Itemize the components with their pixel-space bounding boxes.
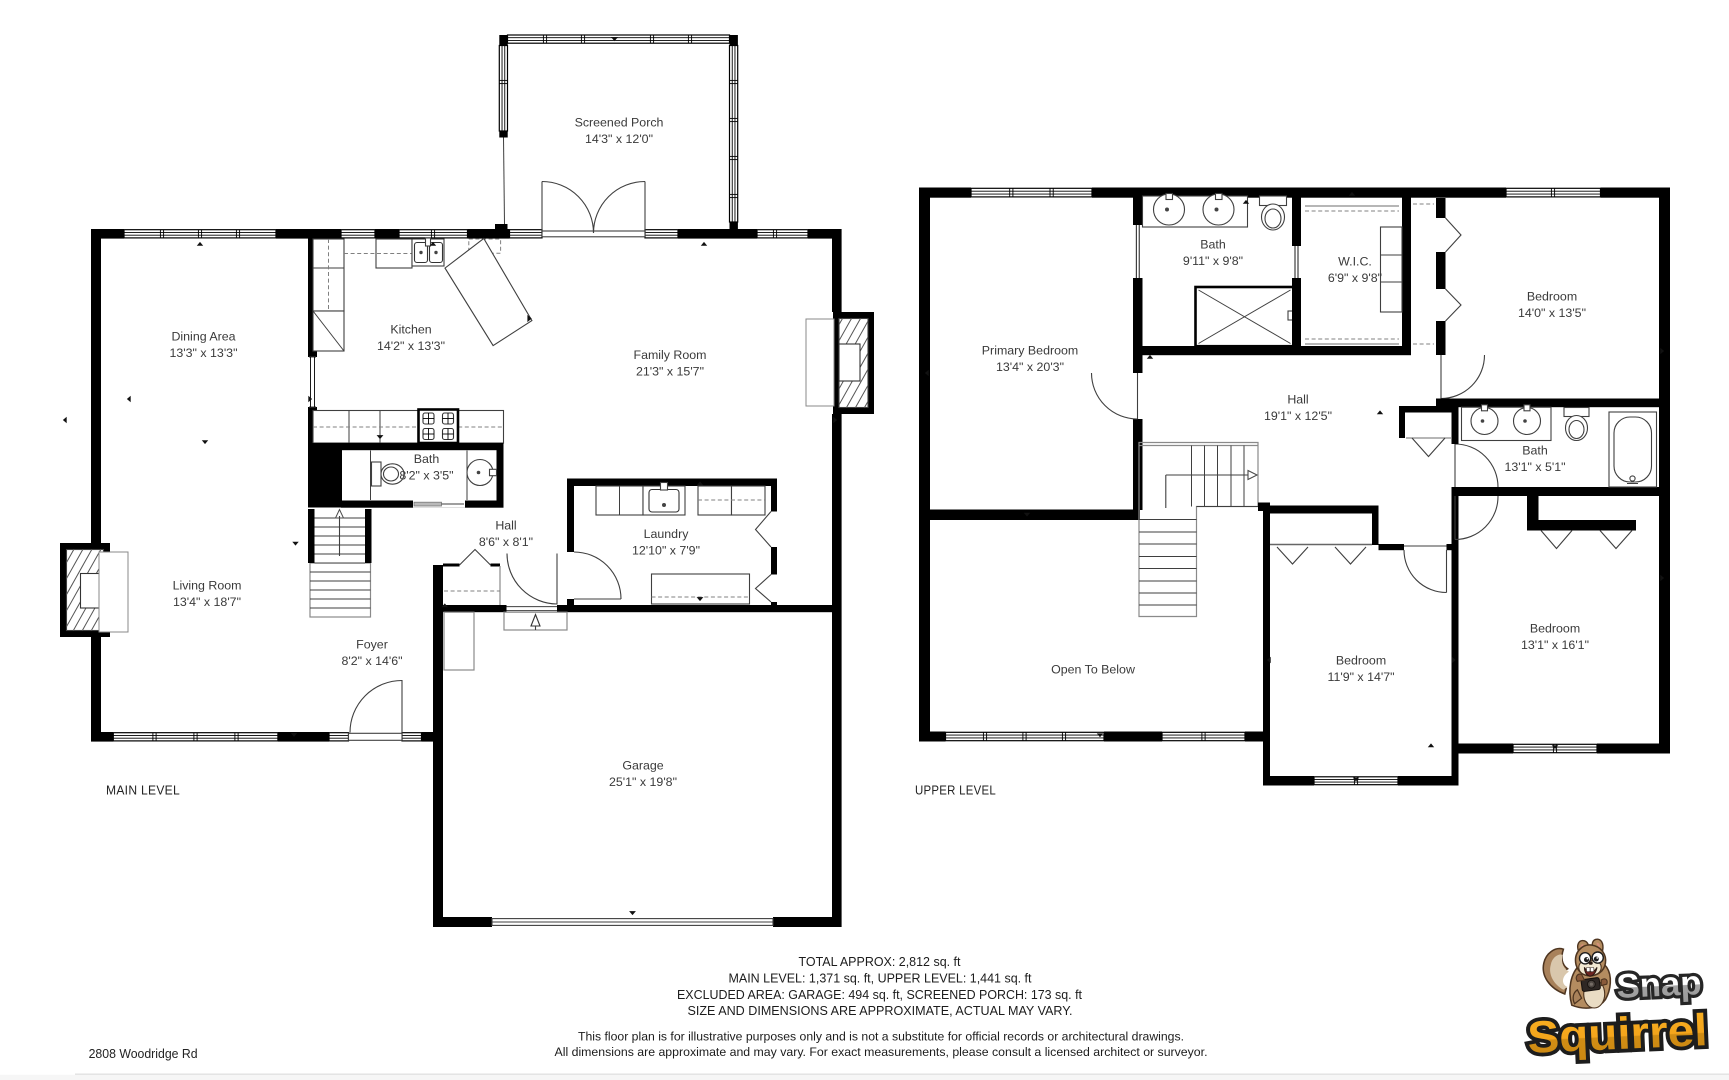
svg-text:19'1" x 12'5": 19'1" x 12'5" xyxy=(1264,409,1332,423)
svg-text:Kitchen: Kitchen xyxy=(390,323,431,337)
svg-text:EXCLUDED AREA: GARAGE: 494 sq.: EXCLUDED AREA: GARAGE: 494 sq. ft, SCREE… xyxy=(677,988,1082,1002)
svg-text:W.I.C.: W.I.C. xyxy=(1338,255,1372,269)
svg-text:13'3" x 13'3": 13'3" x 13'3" xyxy=(170,346,238,360)
svg-text:Laundry: Laundry xyxy=(644,527,690,541)
svg-text:Foyer: Foyer xyxy=(356,638,388,652)
svg-text:6'9" x 9'8": 6'9" x 9'8" xyxy=(1328,271,1382,285)
svg-text:Primary Bedroom: Primary Bedroom xyxy=(982,344,1078,358)
svg-text:Bedroom: Bedroom xyxy=(1530,622,1580,636)
svg-text:11'9" x 14'7": 11'9" x 14'7" xyxy=(1327,670,1394,684)
svg-text:2808 Woodridge Rd: 2808 Woodridge Rd xyxy=(89,1047,198,1061)
svg-text:Hall: Hall xyxy=(1287,393,1308,407)
svg-text:Screened Porch: Screened Porch xyxy=(575,116,664,130)
svg-text:Squirrel: Squirrel xyxy=(1526,1004,1708,1063)
svg-text:MAIN LEVEL: 1,371 sq. ft, UPPE: MAIN LEVEL: 1,371 sq. ft, UPPER LEVEL: 1… xyxy=(729,972,1032,986)
svg-text:8'2" x 3'5": 8'2" x 3'5" xyxy=(399,468,453,482)
svg-text:Snap: Snap xyxy=(1616,964,1703,1006)
svg-text:UPPER LEVEL: UPPER LEVEL xyxy=(915,783,996,798)
svg-text:Hall: Hall xyxy=(495,519,516,533)
svg-text:TOTAL APPROX: 2,812 sq. ft: TOTAL APPROX: 2,812 sq. ft xyxy=(799,955,961,969)
svg-text:9'11" x 9'8": 9'11" x 9'8" xyxy=(1183,254,1243,268)
svg-text:13'1" x 16'1": 13'1" x 16'1" xyxy=(1521,638,1589,652)
svg-text:Family Room: Family Room xyxy=(634,348,707,362)
svg-text:Bedroom: Bedroom xyxy=(1527,290,1577,304)
svg-text:Dining Area: Dining Area xyxy=(171,330,235,344)
svg-text:8'6" x 8'1": 8'6" x 8'1" xyxy=(479,535,533,549)
svg-text:13'4" x 18'7": 13'4" x 18'7" xyxy=(173,595,241,609)
svg-text:Bath: Bath xyxy=(414,452,440,466)
svg-text:13'1" x 5'1": 13'1" x 5'1" xyxy=(1504,460,1565,474)
svg-text:Garage: Garage xyxy=(622,759,663,773)
svg-text:8'2" x 14'6": 8'2" x 14'6" xyxy=(341,654,402,668)
svg-text:14'0" x 13'5": 14'0" x 13'5" xyxy=(1518,306,1586,320)
svg-text:Living Room: Living Room xyxy=(173,579,242,593)
svg-text:SIZE AND DIMENSIONS ARE APPROX: SIZE AND DIMENSIONS ARE APPROXIMATE, ACT… xyxy=(688,1004,1073,1018)
svg-text:14'3" x 12'0": 14'3" x 12'0" xyxy=(585,132,653,146)
svg-text:Bath: Bath xyxy=(1200,238,1226,252)
svg-text:13'4" x 20'3": 13'4" x 20'3" xyxy=(996,360,1064,374)
svg-text:25'1" x 19'8": 25'1" x 19'8" xyxy=(609,775,677,789)
svg-text:MAIN LEVEL: MAIN LEVEL xyxy=(106,783,180,798)
svg-text:14'2" x 13'3": 14'2" x 13'3" xyxy=(377,339,445,353)
svg-text:Open To Below: Open To Below xyxy=(1051,663,1135,677)
svg-text:21'3" x 15'7": 21'3" x 15'7" xyxy=(636,364,704,378)
svg-text:Bedroom: Bedroom xyxy=(1336,654,1386,668)
svg-text:Bath: Bath xyxy=(1522,444,1548,458)
svg-text:This floor plan is for illustr: This floor plan is for illustrative purp… xyxy=(578,1030,1184,1044)
svg-text:All dimensions are approximate: All dimensions are approximate and may v… xyxy=(555,1045,1208,1059)
svg-text:12'10" x 7'9": 12'10" x 7'9" xyxy=(632,543,700,557)
